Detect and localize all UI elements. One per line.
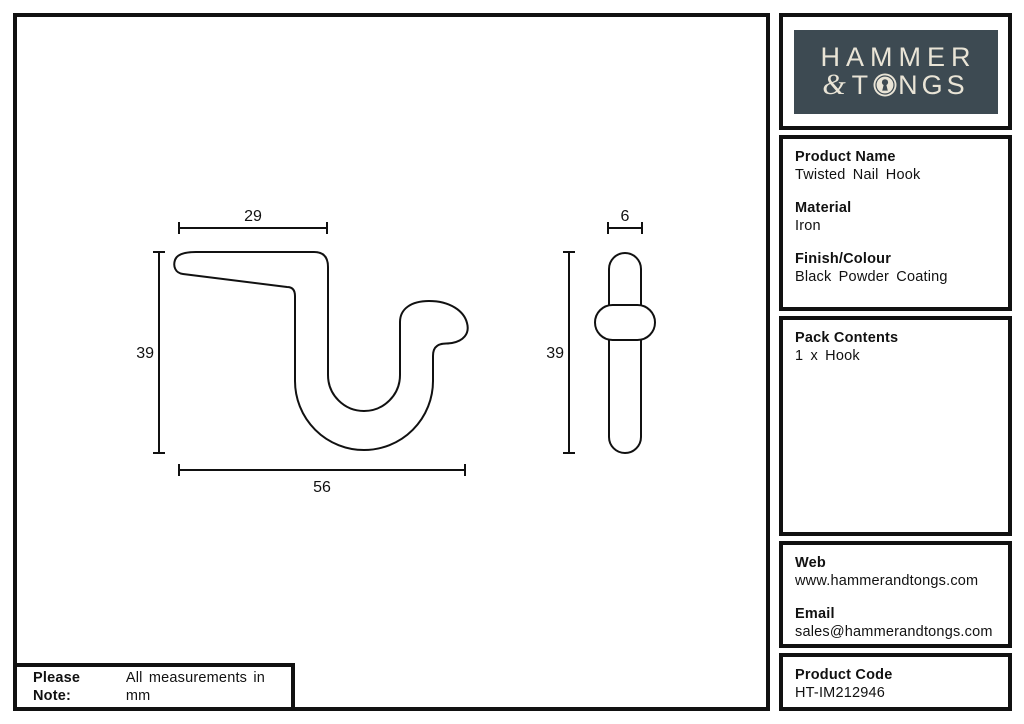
dim-side-height: 39 <box>136 252 165 453</box>
finish-colour-value: Black Powder Coating <box>795 268 996 286</box>
dim-label-39-front: 39 <box>546 345 564 362</box>
hook-side-view-outline <box>174 252 467 450</box>
dim-side-top-width: 29 <box>179 208 327 234</box>
contact-panel: Web www.hammerandtongs.com Email sales@h… <box>779 541 1012 648</box>
logo-tongs-t: T <box>852 71 873 100</box>
dim-label-39-side: 39 <box>136 345 154 362</box>
product-name-value: Twisted Nail Hook <box>795 166 996 184</box>
hook-front-view-twist <box>595 305 655 340</box>
product-name-label: Product Name <box>795 148 996 166</box>
keyhole-icon <box>873 73 897 97</box>
dim-label-29: 29 <box>244 208 262 225</box>
finish-colour-label: Finish/Colour <box>795 250 996 268</box>
web-group: Web www.hammerandtongs.com <box>795 554 996 590</box>
dim-label-6: 6 <box>621 208 630 225</box>
logo-tongs-ngs: NGS <box>898 71 969 100</box>
product-code-group: Product Code HT-IM212946 <box>795 666 996 702</box>
email-label: Email <box>795 605 996 623</box>
web-label: Web <box>795 554 996 572</box>
material-label: Material <box>795 199 996 217</box>
dim-side-bottom-width: 56 <box>179 464 465 496</box>
dim-front-width: 6 <box>608 208 642 234</box>
finish-colour-group: Finish/Colour Black Powder Coating <box>795 250 996 286</box>
product-code-label: Product Code <box>795 666 996 684</box>
note-label: Please Note: <box>33 669 120 705</box>
pack-contents-panel: Pack Contents 1 x Hook <box>779 316 1012 536</box>
email-value: sales@hammerandtongs.com <box>795 623 996 641</box>
hook-front-view-body <box>609 253 641 453</box>
hammer-and-tongs-logo: HAMMER & T NGS <box>794 30 998 114</box>
pack-contents-label: Pack Contents <box>795 329 996 347</box>
web-value: www.hammerandtongs.com <box>795 572 996 590</box>
spec-sheet: 29 39 56 6 39 Please Note: All measureme… <box>0 0 1024 724</box>
pack-contents-group: Pack Contents 1 x Hook <box>795 329 996 365</box>
material-value: Iron <box>795 217 996 235</box>
pack-contents-value: 1 x Hook <box>795 347 996 365</box>
material-group: Material Iron <box>795 199 996 235</box>
email-group: Email sales@hammerandtongs.com <box>795 605 996 641</box>
note-text: All measurements in mm <box>126 669 291 705</box>
dim-label-56: 56 <box>313 479 331 496</box>
logo-word-hammer: HAMMER <box>815 44 977 71</box>
product-code-panel: Product Code HT-IM212946 <box>779 653 1012 711</box>
product-code-value: HT-IM212946 <box>795 684 996 702</box>
logo-word-tongs: & T NGS <box>822 71 968 100</box>
logo-panel: HAMMER & T NGS <box>779 13 1012 130</box>
product-info-panel: Product Name Twisted Nail Hook Material … <box>779 135 1012 311</box>
logo-ampersand: & <box>822 72 849 98</box>
dim-front-height: 39 <box>546 252 575 453</box>
product-name-group: Product Name Twisted Nail Hook <box>795 148 996 184</box>
measurement-note: Please Note: All measurements in mm <box>13 663 295 711</box>
